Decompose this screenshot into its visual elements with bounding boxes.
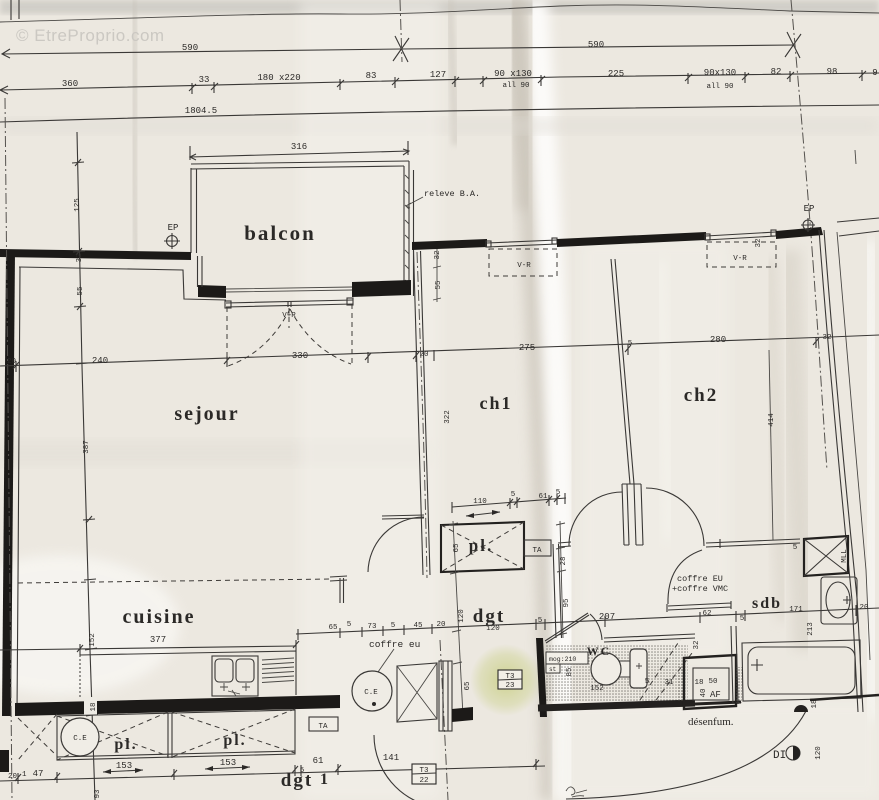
svg-text:5: 5 (511, 491, 516, 499)
svg-text:all 90: all 90 (706, 83, 734, 91)
svg-text:C.E: C.E (364, 689, 378, 697)
svg-text:73: 73 (367, 623, 377, 631)
svg-text:120: 120 (815, 746, 823, 760)
svg-text:65: 65 (328, 624, 338, 632)
svg-text:360: 360 (62, 79, 78, 89)
svg-text:65: 65 (453, 543, 461, 553)
svg-text:EP: EP (804, 204, 815, 214)
svg-text:5: 5 (628, 340, 633, 348)
svg-text:82: 82 (771, 67, 782, 77)
svg-text:20: 20 (8, 773, 18, 781)
svg-text:207: 207 (599, 612, 615, 622)
svg-text:sejour: sejour (174, 403, 239, 425)
svg-text:377: 377 (150, 635, 166, 645)
svg-text:V-R: V-R (517, 262, 531, 270)
svg-text:32: 32 (76, 253, 84, 262)
svg-text:316: 316 (291, 142, 307, 152)
svg-text:18: 18 (90, 702, 98, 711)
svg-text:61: 61 (538, 493, 548, 501)
svg-text:TA: TA (318, 723, 328, 731)
svg-text:93: 93 (94, 789, 102, 799)
svg-text:ch1: ch1 (480, 393, 513, 413)
svg-text:5: 5 (740, 615, 745, 623)
svg-text:5: 5 (391, 622, 396, 630)
svg-text:9: 9 (872, 68, 877, 78)
svg-text:213: 213 (807, 622, 815, 636)
svg-text:55: 55 (77, 286, 85, 296)
svg-text:275: 275 (519, 343, 535, 353)
svg-text:pl.: pl. (114, 736, 137, 753)
svg-text:C.E: C.E (73, 735, 87, 743)
svg-text:5: 5 (538, 617, 543, 625)
svg-text:28: 28 (560, 556, 568, 565)
svg-text:152: 152 (590, 685, 604, 693)
svg-text:1: 1 (320, 771, 330, 788)
svg-text:AF: AF (710, 690, 721, 700)
svg-text:61: 61 (313, 756, 324, 766)
svg-text:47: 47 (33, 769, 44, 779)
svg-text:18: 18 (811, 699, 819, 708)
svg-text:127: 127 (430, 70, 446, 80)
svg-text:32: 32 (822, 334, 831, 342)
svg-text:pl.: pl. (469, 536, 493, 555)
svg-text:33: 33 (199, 75, 210, 85)
svg-text:322: 322 (444, 410, 452, 424)
svg-text:balcon: balcon (244, 221, 316, 245)
svg-text:5: 5 (556, 489, 561, 497)
svg-text:414: 414 (768, 413, 776, 427)
svg-text:pl.: pl. (223, 732, 246, 749)
svg-text:T3: T3 (505, 673, 515, 681)
svg-text:590: 590 (588, 40, 604, 50)
svg-text:coffre eu: coffre eu (369, 639, 420, 650)
svg-text:sdb: sdb (752, 595, 782, 612)
svg-text:280: 280 (710, 335, 726, 345)
svg-text:TA: TA (532, 547, 542, 555)
svg-text:coffre EU: coffre EU (677, 574, 723, 584)
svg-text:ch2: ch2 (684, 385, 719, 406)
svg-text:225: 225 (608, 69, 624, 79)
svg-text:120: 120 (486, 625, 500, 633)
svg-text:1: 1 (22, 771, 27, 779)
svg-text:171: 171 (789, 606, 803, 614)
svg-text:62: 62 (702, 610, 711, 618)
svg-text:V-R: V-R (733, 255, 747, 263)
svg-text:95: 95 (563, 598, 571, 608)
svg-text:1804.5: 1804.5 (185, 106, 217, 116)
svg-text:387: 387 (83, 440, 91, 454)
svg-text:45: 45 (413, 622, 423, 630)
svg-text:32: 32 (434, 250, 442, 259)
svg-text:141: 141 (383, 753, 399, 763)
svg-text:st: st (549, 666, 556, 673)
svg-text:5: 5 (347, 621, 352, 629)
svg-text:240: 240 (92, 356, 108, 366)
svg-text:98: 98 (827, 67, 838, 77)
svg-text:23: 23 (505, 682, 515, 690)
svg-text:dgt: dgt (281, 770, 313, 791)
svg-text:590: 590 (182, 43, 198, 53)
svg-text:152: 152 (89, 633, 97, 647)
svg-text:DI: DI (773, 750, 786, 762)
svg-text:180 x220: 180 x220 (257, 73, 300, 83)
svg-text:5: 5 (645, 678, 650, 686)
svg-text:330: 330 (292, 351, 308, 361)
svg-text:cuisine: cuisine (123, 606, 196, 628)
svg-text:WC: WC (587, 644, 612, 658)
svg-text:dgt: dgt (473, 606, 505, 627)
svg-text:32: 32 (755, 238, 763, 247)
svg-text:153: 153 (116, 761, 132, 771)
svg-text:MLL: MLL (841, 549, 849, 563)
svg-text:20: 20 (859, 604, 869, 612)
svg-text:40: 40 (700, 688, 708, 698)
svg-text:55: 55 (435, 280, 443, 290)
svg-text:20: 20 (436, 621, 446, 629)
svg-text:125: 125 (74, 198, 82, 212)
svg-text:T3: T3 (419, 767, 429, 775)
svg-text:20: 20 (7, 358, 17, 366)
svg-text:90 x130: 90 x130 (494, 69, 532, 79)
svg-text:5: 5 (793, 544, 798, 552)
svg-text:releve B.A.: releve B.A. (424, 189, 480, 199)
svg-text:83: 83 (366, 71, 377, 81)
svg-text:+coffre VMC: +coffre VMC (672, 584, 728, 594)
svg-text:120: 120 (458, 609, 466, 623)
svg-text:mog:210: mog:210 (549, 656, 576, 663)
svg-text:153: 153 (220, 758, 236, 768)
svg-text:90x130: 90x130 (704, 68, 736, 78)
svg-text:EP: EP (168, 223, 179, 233)
svg-text:désenfum.: désenfum. (688, 716, 734, 728)
svg-text:all 90: all 90 (502, 82, 530, 90)
svg-text:110: 110 (473, 498, 487, 506)
svg-text:32: 32 (693, 640, 701, 649)
svg-text:85: 85 (566, 667, 574, 677)
svg-text:22: 22 (419, 777, 428, 785)
svg-text:50: 50 (708, 678, 718, 686)
svg-text:© EtreProprio.com: © EtreProprio.com (16, 26, 165, 45)
svg-text:18: 18 (694, 679, 703, 687)
